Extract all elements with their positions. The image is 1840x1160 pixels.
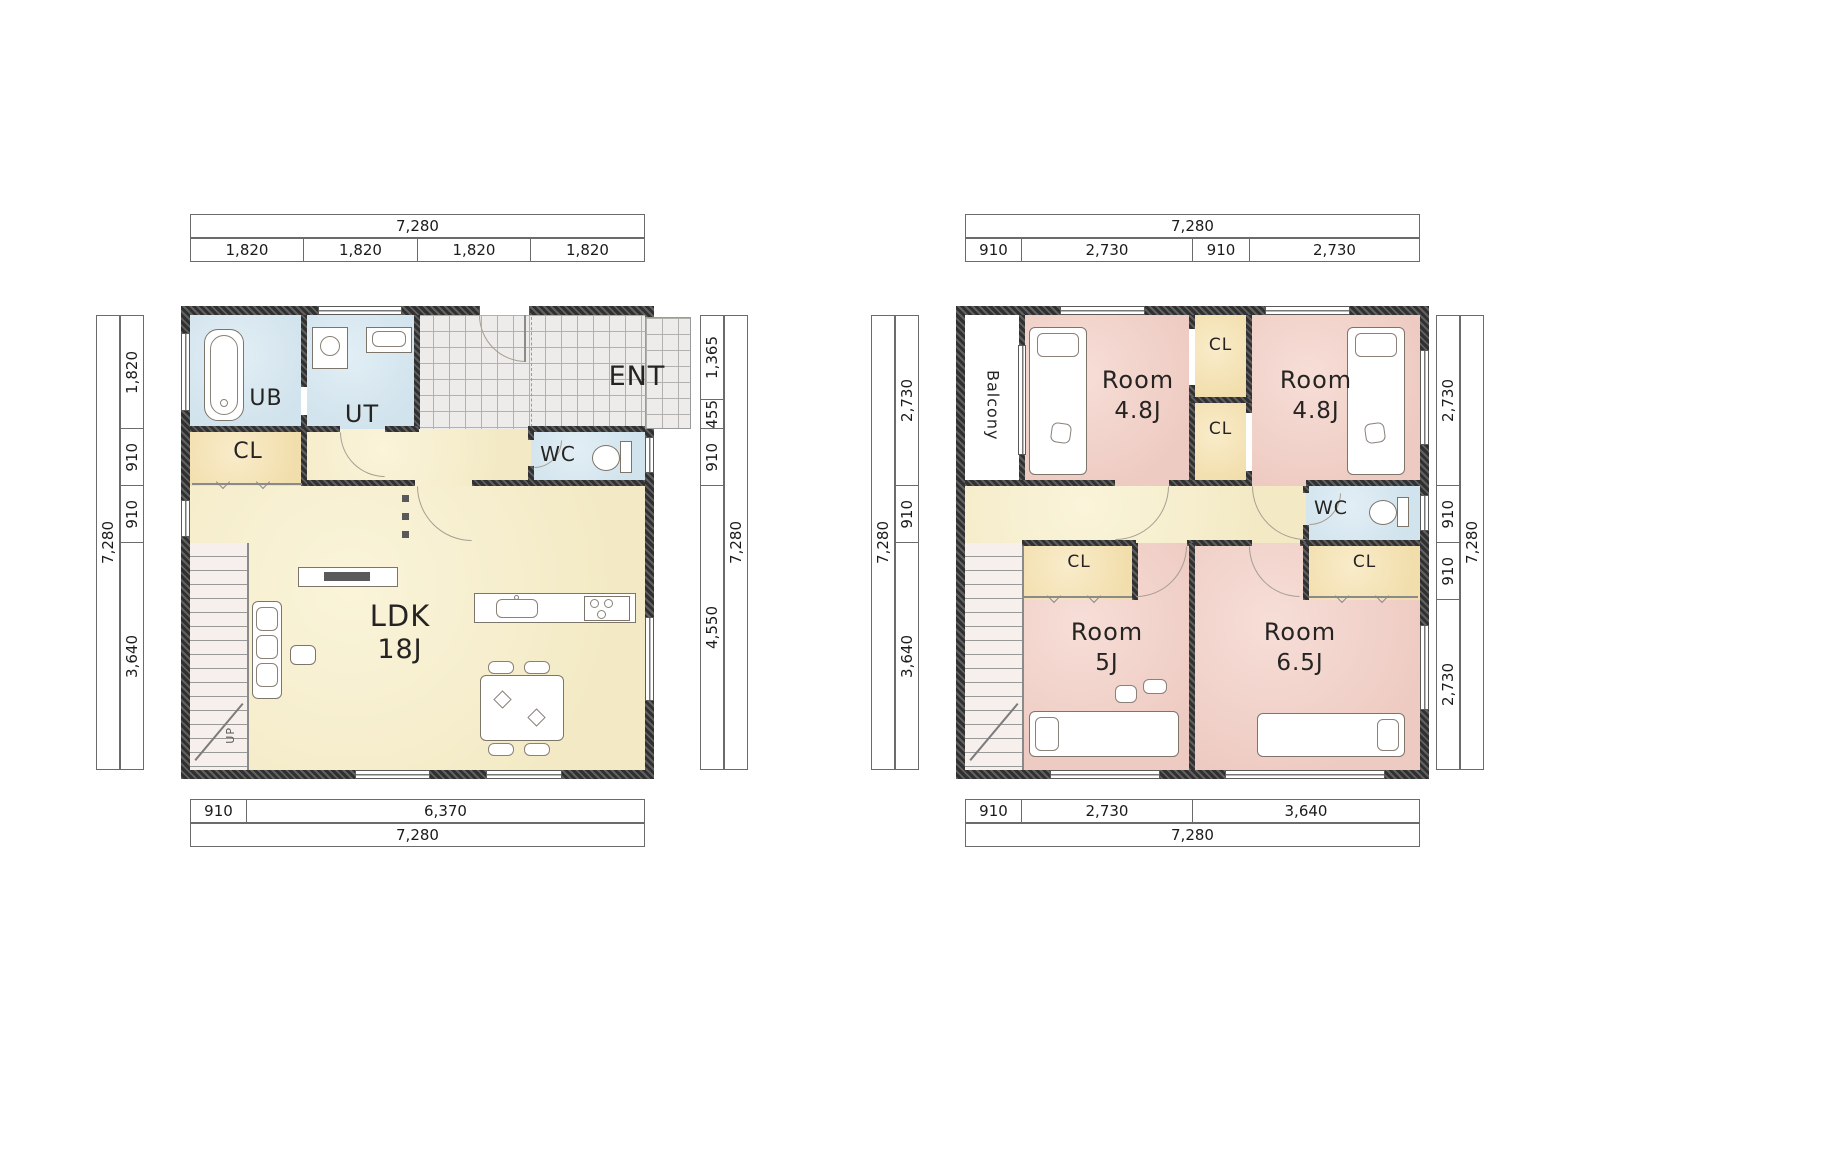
toilet-tank [620,441,632,473]
dim-value: 7,280 [874,521,892,564]
window [1420,625,1429,710]
pillow [1355,333,1397,357]
wall [301,429,307,486]
dim-value: 2,730 [1439,663,1457,706]
floor1-dim-top-total: 7,280 [190,214,645,238]
pillow [1037,333,1079,357]
closet-top [1192,315,1249,400]
dim-cell: 1,820 [120,315,144,429]
window [486,770,562,779]
sofa-cushion [256,635,278,659]
cushion [1050,422,1073,445]
floor2-dim-top-total: 7,280 [965,214,1420,238]
label-cl-mid: CL [1192,417,1249,441]
room-name: Room [1102,366,1174,394]
wall [1022,540,1136,546]
floor1-dim-top-segments: 1,820 1,820 1,820 1,820 [190,238,645,262]
window [1420,350,1429,445]
coffee-table [290,645,316,665]
wall [528,480,645,486]
dim-cell: 1,820 [531,238,645,262]
utility-sink-basin [372,331,406,347]
label-ldk: LDK [340,599,460,633]
chair [524,743,550,756]
desk-chair [1115,685,1137,703]
dim-cell: 910 [1436,486,1460,543]
dim-cell: 1,820 [418,238,531,262]
dim-cell: 7,280 [96,315,120,770]
room-name: CL [233,439,263,464]
room-name: WC [540,442,576,466]
cushion [1364,422,1387,445]
stairs-edge-line [247,543,249,770]
dim-value: 2,730 [1086,241,1129,259]
dim-cell: 1,820 [190,238,304,262]
dim-value: 7,280 [727,521,745,564]
closet-mid [1192,400,1249,486]
room-name: CL [1209,419,1232,439]
floor1-dim-bottom-total: 7,280 [190,823,645,847]
dim-cell: 7,280 [190,214,645,238]
floor1-plan: UB UT ENT CL WC LDK 18J UP [181,306,654,779]
window [181,333,190,411]
label-cl-left: CL [1022,549,1136,575]
dim-value: 910 [979,241,1008,259]
closet-front-line [192,483,302,485]
room-name: Room [1264,618,1336,646]
sofa-cushion [256,663,278,687]
dim-cell: 910 [965,799,1022,823]
dim-cell: 455 [700,400,724,429]
dim-cell: 6,370 [247,799,645,823]
room-name: Room [1280,366,1352,394]
dim-value: 1,820 [453,241,496,259]
room-name: LDK [370,599,431,633]
dim-value: 7,280 [1171,217,1214,235]
room-size: 18J [377,634,422,665]
dim-cell: 910 [190,799,247,823]
toilet-tank [1397,497,1409,527]
label-wc-2f: WC [1309,495,1353,521]
dim-value: 3,640 [1285,802,1328,820]
window [1225,770,1385,779]
dim-value: 7,280 [1463,521,1481,564]
dim-cell: 7,280 [965,214,1420,238]
chair [488,743,514,756]
dim-cell: 910 [1193,238,1250,262]
stairs-2f [965,543,1022,770]
dim-cell: 910 [700,429,724,486]
label-cl: CL [210,437,286,465]
dim-cell: 1,820 [304,238,418,262]
floor2-dim-right-segments: 2,730 910 910 2,730 [1436,315,1460,770]
floor1-dim-left-total: 7,280 [96,315,120,770]
floor2-floor: Balcony Room 4.8J CL CL Room 4.8J WC CL … [965,315,1420,770]
dim-cell: 7,280 [190,823,645,847]
dim-value: 7,280 [1171,826,1214,844]
tv [324,572,370,581]
window [645,437,654,473]
dim-value: 910 [204,802,233,820]
burner [590,599,599,608]
dim-cell: 2,730 [1436,600,1460,770]
closet-front-line [1309,596,1418,598]
dim-value: 7,280 [99,521,117,564]
drain [220,399,228,407]
dim-cell: 910 [120,486,144,543]
burner [597,610,606,619]
dim-cell: 2,730 [1250,238,1420,262]
burner [604,599,613,608]
room-name: CL [1209,335,1232,355]
dim-value: 1,820 [339,241,382,259]
dining-table [480,675,564,741]
floor1-floor: UB UT ENT CL WC LDK 18J UP [190,315,645,770]
dim-cell: 910 [120,429,144,486]
room-name: UB [249,386,282,411]
dim-cell: 2,730 [1022,238,1193,262]
floorplan-canvas: 7,280 1,820 1,820 1,820 1,820 7,280 1,82… [0,0,1840,1160]
dim-value: 2,730 [1086,802,1129,820]
dim-cell: 3,640 [1193,799,1420,823]
stairs-edge-line [1022,543,1024,770]
window [318,306,402,315]
floor2-dim-left-segments: 2,730 910 3,640 [895,315,919,770]
label-ent: ENT [582,359,692,393]
wall [472,480,531,486]
floor2-dim-top-segments: 910 2,730 910 2,730 [965,238,1420,262]
dim-value: 2,730 [1313,241,1356,259]
chair [524,661,550,674]
label-balcony: Balcony [975,343,1011,467]
faucet [514,595,519,600]
floor2-dim-bottom-total: 7,280 [965,823,1420,847]
label-cl-top: CL [1192,333,1249,357]
wall [307,480,415,486]
label-room-d: Room [1235,617,1365,647]
wall [528,426,645,432]
dim-cell: 7,280 [724,315,748,770]
dim-cell: 3,640 [120,543,144,770]
wall [1189,543,1195,770]
dim-cell: 4,550 [700,486,724,770]
label-room-a: Room [1083,365,1193,395]
dim-value: 3,640 [898,635,916,678]
room-name: CL [1067,552,1090,572]
room-name: Room [1071,618,1143,646]
floor2-dim-left-total: 7,280 [871,315,895,770]
dim-cell: 2,730 [895,315,919,486]
deco-square [402,495,409,502]
label-room-b: Room [1261,365,1371,395]
washer-drum [320,336,340,356]
window [1060,306,1145,315]
dim-cell: 1,365 [700,315,724,400]
wall [1169,480,1252,486]
dim-cell: 7,280 [965,823,1420,847]
room-name: ENT [609,361,666,392]
label-wc: WC [536,441,580,467]
floor1-dim-bottom-segments: 910 6,370 [190,799,645,823]
dim-cell: 910 [895,486,919,543]
window [1050,770,1160,779]
dim-value: 910 [1439,500,1457,529]
dim-cell: 910 [1436,543,1460,600]
wall [414,315,420,429]
room-size: 6.5J [1276,650,1323,676]
door-leaf [524,315,526,362]
floor1-dim-right-segments: 1,365 455 910 4,550 [700,315,724,770]
label-ub: UB [230,385,302,411]
genkan-step-line [531,317,532,427]
room-name: Balcony [984,370,1003,440]
closet-front-line [1022,596,1132,598]
dim-value: 910 [898,500,916,529]
dim-value: 910 [1207,241,1236,259]
deco-square [402,531,409,538]
stairs-direction: UP [224,727,237,744]
chair [488,661,514,674]
dim-value: 910 [123,443,141,472]
pillow [1377,719,1399,751]
room-name: WC [1314,497,1348,519]
floor2-dim-right-total: 7,280 [1460,315,1484,770]
balcony-sliding-window [1018,345,1026,455]
hall-1f [304,429,531,486]
dim-cell: 7,280 [1460,315,1484,770]
dim-value: 1,820 [566,241,609,259]
room-size: 5J [1095,650,1118,676]
dim-value: 910 [123,500,141,529]
wall [1187,540,1252,546]
room-name: UT [345,400,379,428]
dim-value: 910 [703,443,721,472]
side-table [1143,679,1167,694]
floor1-dim-right-total: 7,280 [724,315,748,770]
dim-value: 6,370 [424,802,467,820]
kitchen-sink [496,599,538,618]
window [355,770,430,779]
dim-cell: 2,730 [1022,799,1193,823]
dim-value: 2,730 [1439,379,1457,422]
label-room-a-size: 4.8J [1083,397,1193,425]
dim-value: 910 [1439,557,1457,586]
label-room-c-size: 5J [1045,649,1169,677]
wall [1189,397,1252,403]
floor2-dim-bottom-segments: 910 2,730 3,640 [965,799,1420,823]
sofa-cushion [256,607,278,631]
label-room-b-size: 4.8J [1261,397,1371,425]
dim-value: 3,640 [123,635,141,678]
label-room-d-size: 6.5J [1235,649,1365,677]
dim-cell: 910 [965,238,1022,262]
wall [1300,540,1420,546]
dim-value: 1,820 [226,241,269,259]
dim-value: 1,365 [703,336,721,379]
deco-square [402,513,409,520]
label-ldk-size: 18J [340,633,460,665]
window [1265,306,1350,315]
room-name: CL [1353,552,1376,572]
wall [965,480,1115,486]
dim-cell: 2,730 [1436,315,1460,486]
entrance-door-opening [479,306,530,315]
label-up: UP [220,713,240,757]
label-cl-right: CL [1309,549,1420,575]
window [1420,495,1429,531]
dim-cell: 7,280 [871,315,895,770]
room-size: 4.8J [1292,398,1339,424]
wall [528,432,534,440]
toilet-bowl [592,445,620,471]
label-room-c: Room [1045,617,1169,647]
dim-value: 2,730 [898,379,916,422]
dim-value: 7,280 [396,217,439,235]
dim-value: 7,280 [396,826,439,844]
toilet-bowl [1369,500,1397,525]
dim-cell: 3,640 [895,543,919,770]
dim-value: 1,820 [123,351,141,394]
dim-value: 455 [703,400,721,429]
window [645,617,654,701]
floor2-plan: Balcony Room 4.8J CL CL Room 4.8J WC CL … [956,306,1429,779]
pillow [1035,717,1059,751]
dim-value: 910 [979,802,1008,820]
floor1-dim-left-segments: 1,820 910 910 3,640 [120,315,144,770]
wall [190,426,340,432]
label-ut: UT [320,399,404,429]
wall [1306,480,1420,486]
dim-value: 4,550 [703,606,721,649]
room-size: 4.8J [1114,398,1161,424]
window [181,500,190,537]
